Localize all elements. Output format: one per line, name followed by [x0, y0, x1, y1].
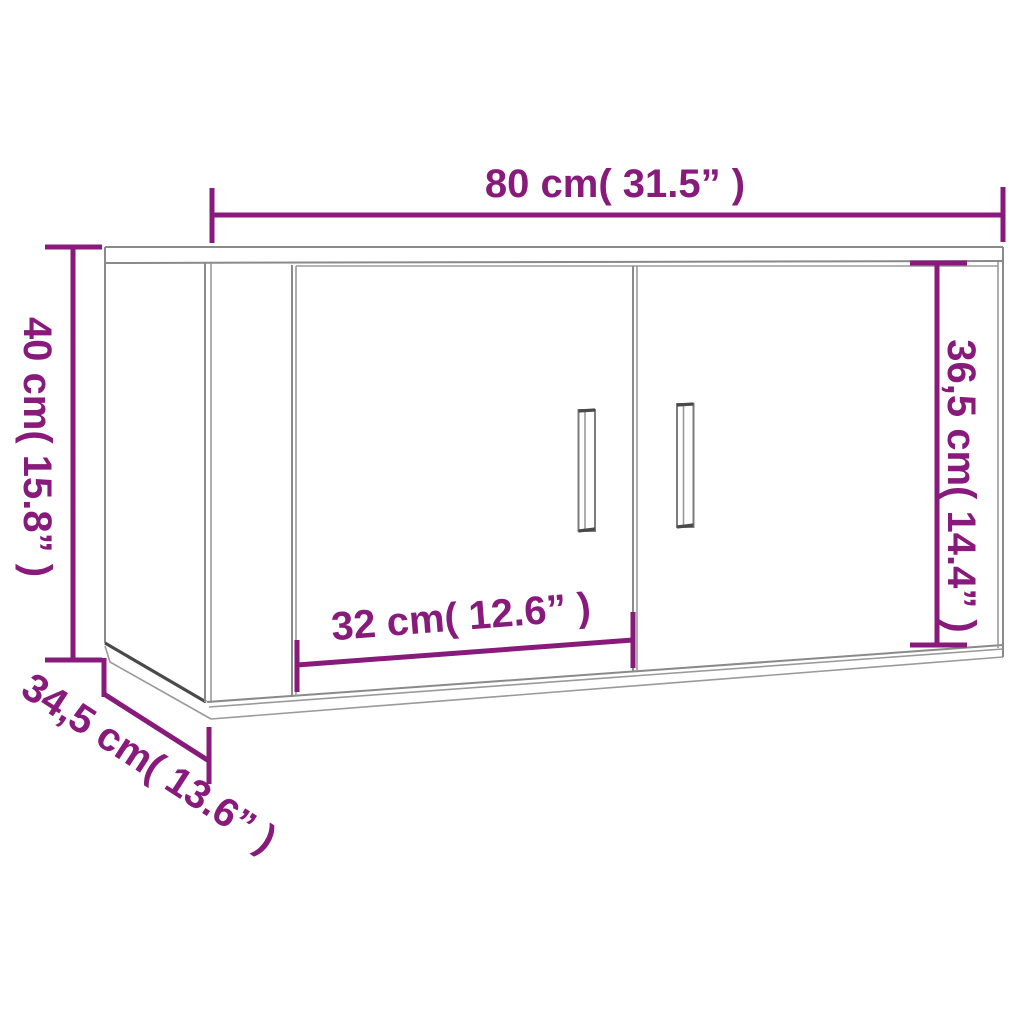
depth-dimension-label: 34,5 cm( 13.6” ) [14, 665, 284, 862]
right-handle-top-cap [677, 404, 694, 405]
cabinet-front-bottom-edge [207, 645, 1003, 702]
width-dimension-label: 80 cm( 31.5” ) [485, 162, 745, 206]
left-door-handle [579, 410, 596, 531]
diagram-canvas: 80 cm( 31.5” ) 40 cm( 15.8” ) 36,5 cm( 1… [0, 0, 1024, 1024]
front-height-dimension-label: 36,5 cm( 14.4” ) [939, 339, 983, 633]
right-handle-body [677, 404, 694, 527]
dimension-width: 80 cm( 31.5” ) [212, 162, 1003, 243]
cabinet-bottom-strip-edge [211, 657, 1003, 719]
cabinet-bottom-left-wrap-edge [105, 646, 211, 719]
right-door-handle [677, 404, 694, 527]
dimension-depth: 34,5 cm( 13.6” ) [14, 658, 284, 861]
right-handle-bottom-cap [677, 525, 694, 527]
cabinet-top-band-bottom-edge [105, 261, 1003, 263]
dimension-height: 40 cm( 15.8” ) [15, 247, 102, 660]
left-handle-top-cap [579, 410, 596, 411]
height-dimension-label: 40 cm( 15.8” ) [15, 317, 59, 577]
cabinet-front-bottom-edge-inner [209, 649, 1003, 707]
left-handle-bottom-cap [579, 529, 596, 531]
dimension-diagram: 80 cm( 31.5” ) 40 cm( 15.8” ) 36,5 cm( 1… [0, 0, 1024, 1024]
door-width-dimension-label: 32 cm( 12.6” ) [330, 585, 593, 649]
cabinet-side-bottom-edge [105, 643, 206, 702]
dimension-annotations: 80 cm( 31.5” ) 40 cm( 15.8” ) 36,5 cm( 1… [14, 162, 1003, 861]
dimension-front-height: 36,5 cm( 14.4” ) [910, 263, 983, 645]
left-handle-body [579, 410, 596, 531]
